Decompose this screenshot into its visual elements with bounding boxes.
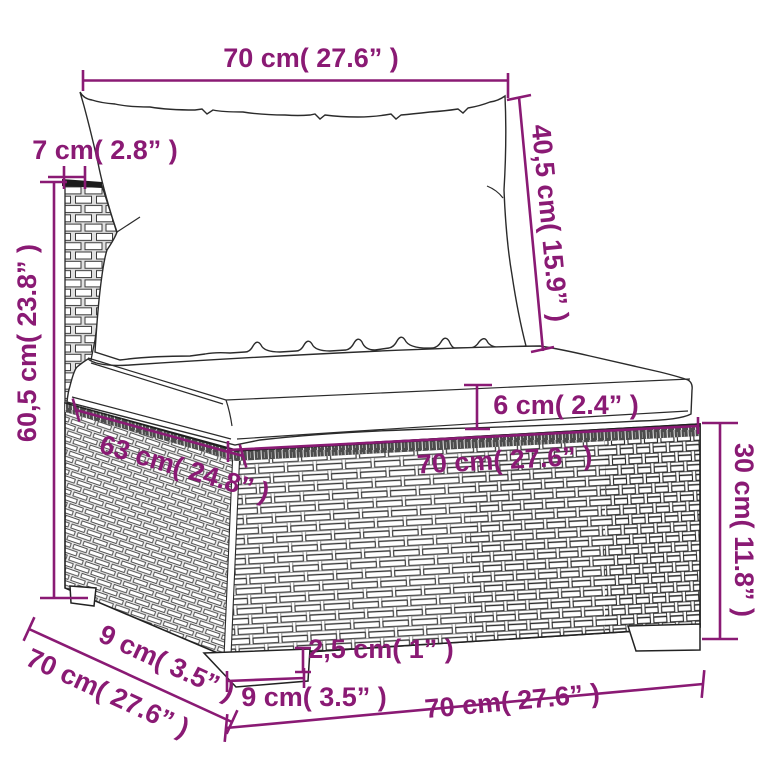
svg-text:30 cm( 11.8” ): 30 cm( 11.8” ) [729,443,759,617]
svg-text:60,5 cm( 23.8” ): 60,5 cm( 23.8” ) [12,244,42,442]
svg-text:2,5 cm( 1” ): 2,5 cm( 1” ) [308,634,454,664]
svg-text:6 cm( 2.4” ): 6 cm( 2.4” ) [493,390,639,420]
svg-text:7 cm( 2.8” ): 7 cm( 2.8” ) [32,135,178,165]
svg-text:70 cm( 27.6” ): 70 cm( 27.6” ) [223,43,399,73]
svg-text:9 cm( 3.5” ): 9 cm( 3.5” ) [241,682,387,712]
